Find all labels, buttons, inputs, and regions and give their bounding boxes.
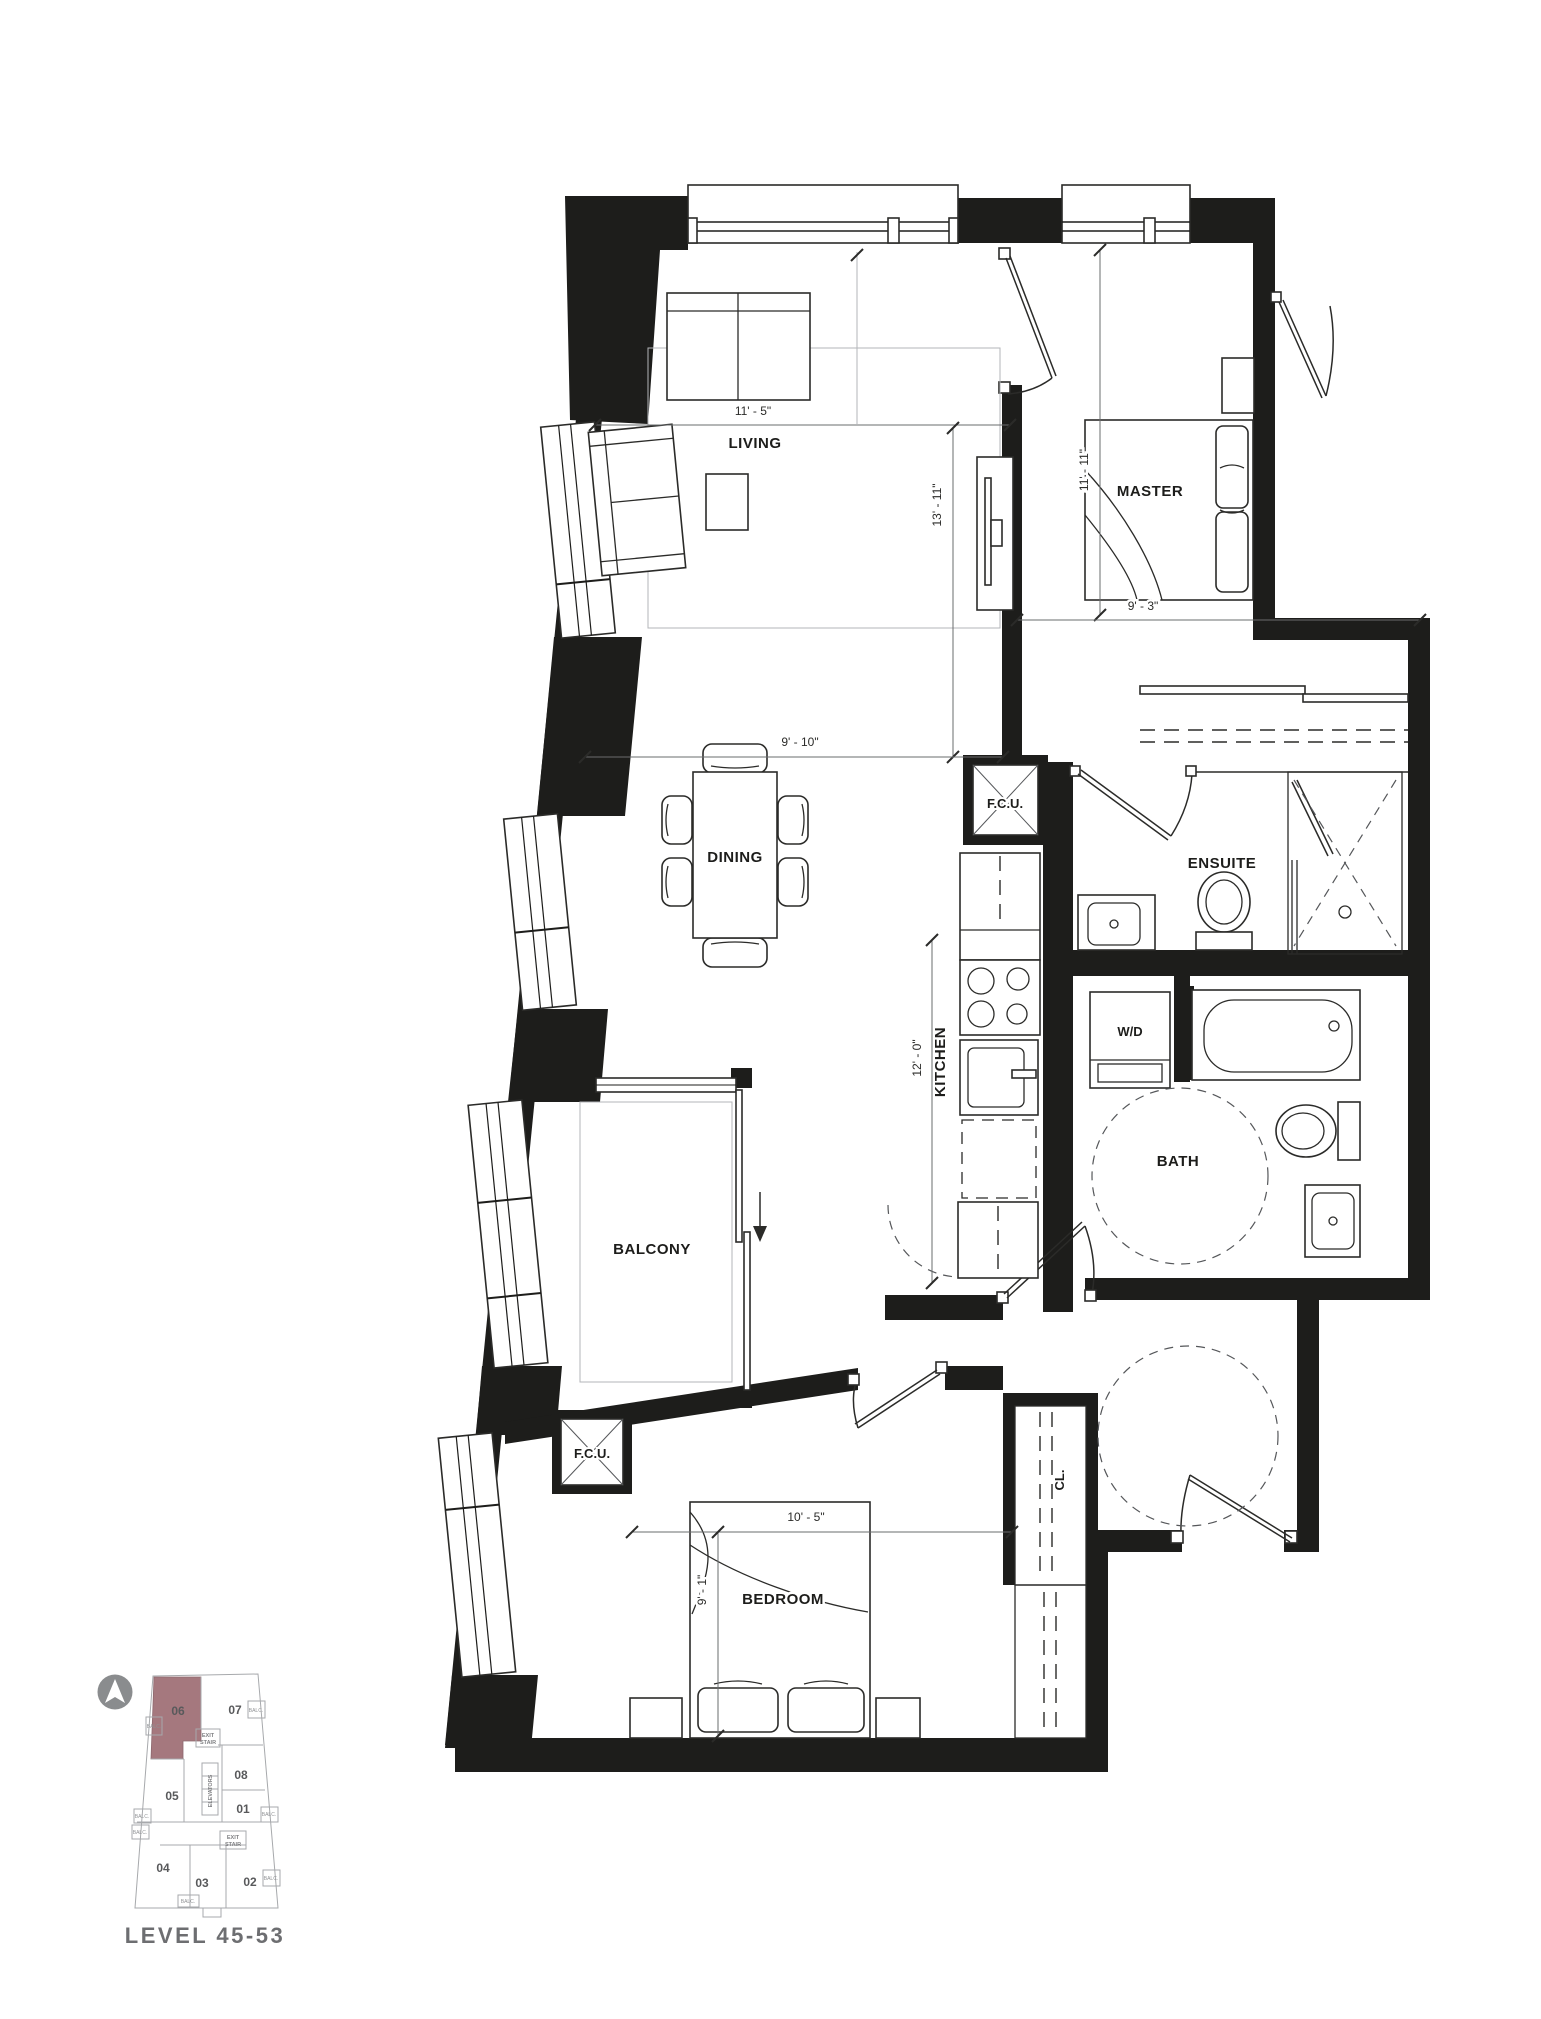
ensuite-label: ENSUITE <box>1188 855 1257 872</box>
dining-label: DINING <box>707 849 763 866</box>
level-label: LEVEL 45-53 <box>125 1923 285 1948</box>
keyplan-unit-01: 01 <box>236 1802 250 1816</box>
nightstand-right <box>876 1698 920 1738</box>
entry-closet: CL. <box>1015 1406 1086 1585</box>
fcu2-label: F.C.U. <box>574 1446 610 1461</box>
corridor-door <box>1271 292 1333 398</box>
window-top-master <box>1062 185 1190 243</box>
bath-turning-circle <box>1092 1088 1268 1264</box>
floor-plan-canvas: F.C.U. F.C.U. CL. <box>0 0 1541 2019</box>
master-label: MASTER <box>1117 483 1183 500</box>
window-top-living <box>688 185 958 243</box>
dim-living-width: 11' - 5" <box>735 404 771 418</box>
window-dining-side <box>504 814 577 1010</box>
bedroom-closet <box>1015 1585 1086 1738</box>
balcony-label: BALCONY <box>613 1241 691 1258</box>
kitchen-label: KITCHEN <box>932 1027 949 1097</box>
stove <box>960 960 1040 1035</box>
ensuite-toilet <box>1196 872 1252 950</box>
master-closet <box>1140 686 1408 772</box>
bath-sink <box>1305 1185 1360 1257</box>
bath-label: BATH <box>1157 1153 1200 1170</box>
dim-dining-width: 9' - 10" <box>781 735 818 749</box>
dim-master-depth: 11' - 11" <box>1077 449 1091 491</box>
keyplan-exit-stair-2-line2: STAIR <box>225 1842 241 1848</box>
living-label: LIVING <box>728 435 781 452</box>
bedroom-label: BEDROOM <box>742 1591 824 1608</box>
dim-kitchen-depth: 12' - 0" <box>910 1039 924 1076</box>
entry-door <box>1171 1475 1297 1543</box>
key-plan: 06 07 08 01 05 04 03 02 EXIT STAIR EXIT … <box>98 1674 286 1948</box>
floorplan-page: F.C.U. F.C.U. CL. <box>0 0 1541 2019</box>
ensuite-door <box>1070 766 1196 840</box>
tv-unit <box>977 457 1013 610</box>
kitchen-sink <box>960 1040 1038 1115</box>
keyplan-unit-08: 08 <box>234 1768 248 1782</box>
media-console <box>667 293 810 400</box>
master-furniture <box>1085 358 1254 600</box>
keyplan-balc-07: BALC. <box>249 1708 263 1714</box>
shower-door <box>1292 780 1333 856</box>
keyplan-balc-05a: BALC. <box>135 1814 149 1820</box>
window-balcony-side <box>468 1100 548 1368</box>
keyplan-unit-04: 04 <box>156 1861 170 1875</box>
keyplan-balc-06: BALC. <box>147 1724 161 1730</box>
bath-toilet <box>1276 1102 1360 1160</box>
balcony-door-arrow <box>753 1192 767 1242</box>
keyplan-exit-stair-1-line2: STAIR <box>200 1740 216 1746</box>
coffee-table <box>706 474 748 530</box>
ensuite-sink <box>1078 895 1155 950</box>
keyplan-balc-01: BALC. <box>262 1812 276 1818</box>
keyplan-unit-02: 02 <box>243 1875 257 1889</box>
keyplan-unit-06-highlight <box>151 1677 201 1759</box>
bedroom-door <box>848 1362 947 1428</box>
balcony-glazing <box>596 1078 750 1390</box>
keyplan-unit-06: 06 <box>171 1704 185 1718</box>
north-arrow-icon <box>98 1675 133 1710</box>
bathtub <box>1192 990 1360 1080</box>
dim-living-depth: 13' - 11" <box>930 483 944 526</box>
sofa <box>588 424 685 575</box>
keyplan-balc-05b: BALC. <box>133 1830 147 1836</box>
window-bedroom-side <box>438 1433 515 1677</box>
keyplan-unit-03: 03 <box>195 1876 209 1890</box>
fcu1-label: F.C.U. <box>987 796 1023 811</box>
closet-label: CL. <box>1052 1470 1067 1491</box>
keyplan-unit-05: 05 <box>165 1789 179 1803</box>
fcu-unit-2: F.C.U. <box>552 1410 632 1494</box>
wd-label: W/D <box>1117 1024 1142 1039</box>
dim-master-width: 9' - 3" <box>1128 599 1159 613</box>
fcu-unit-1: F.C.U. <box>963 755 1048 845</box>
nightstand <box>1222 358 1254 413</box>
master-hall-door <box>999 248 1056 394</box>
keyplan-elevators-label: ELEVATORS <box>208 1774 214 1807</box>
bedroom-furniture <box>630 1502 920 1738</box>
keyplan-unit-07: 07 <box>228 1703 242 1717</box>
nightstand-left <box>630 1698 682 1738</box>
keyplan-exit-stair-2-line1: EXIT <box>227 1835 240 1841</box>
dim-bedroom-depth: 9' - 1" <box>695 1575 709 1606</box>
shower <box>1288 772 1402 954</box>
clearance-arc <box>888 1205 958 1277</box>
keyplan-balc-02: BALC. <box>264 1876 278 1882</box>
keyplan-exit-stair-1-line1: EXIT <box>202 1733 215 1739</box>
entry-turning-circle <box>1098 1346 1278 1526</box>
keyplan-balc-03: BALC. <box>181 1899 195 1905</box>
cabinet-dashed <box>962 1120 1036 1198</box>
washer-dryer: W/D <box>1090 992 1170 1088</box>
dim-bedroom-width: 10' - 5" <box>787 1510 824 1524</box>
